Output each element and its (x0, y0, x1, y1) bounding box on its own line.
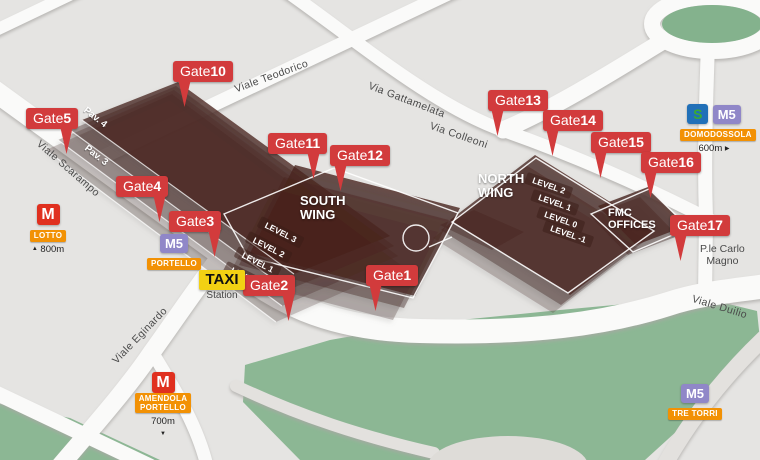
gate-10-pointer-icon (177, 81, 192, 107)
south-wing-line1: SOUTH (300, 193, 346, 208)
domodossola-name-badge: DOMODOSSOLA (680, 129, 756, 141)
metro-m-icon: M (37, 204, 60, 225)
m5-icon: M5 (681, 384, 709, 403)
gate-12-number: 12 (367, 147, 383, 163)
suburban-rail-icon: S (687, 104, 708, 124)
portello-name-badge: PORTELLO (147, 258, 201, 270)
taxi-station[interactable]: TAXI Station (196, 270, 248, 301)
lotto-distance: ▲ 800m (18, 244, 78, 255)
metro-m-icon: M (152, 372, 175, 393)
gate-17-pointer-icon (673, 235, 688, 261)
gate-3-number: 3 (206, 213, 214, 229)
gate-10-prefix: Gate (180, 63, 210, 79)
gate-4-prefix: Gate (123, 178, 153, 194)
south-wing-line2: WING (300, 207, 335, 222)
north-wing-label: NORTH WING (478, 172, 524, 200)
gate-11-pointer-icon (306, 153, 321, 179)
fmc-offices-label: FMC OFFICES (608, 207, 656, 231)
gate-marker-1[interactable]: Gate1 (366, 265, 418, 311)
gate-1-prefix: Gate (373, 267, 403, 283)
gate-1-number: 1 (403, 267, 411, 283)
north-wing-line2: WING (478, 185, 513, 200)
gate-marker-5[interactable]: Gate5 (26, 108, 78, 154)
tre-torri-name-badge: TRE TORRI (668, 408, 722, 420)
gate-12-prefix: Gate (337, 147, 367, 163)
gate-13-number: 13 (525, 92, 541, 108)
south-wing-label: SOUTH WING (300, 194, 346, 222)
station-domodossola[interactable]: S M5 DOMODOSSOLA 600m ▶ (680, 104, 748, 154)
gate-17-number: 17 (707, 217, 723, 233)
station-portello-m5[interactable]: M5 PORTELLO (146, 234, 202, 271)
gate-12-pointer-icon (333, 165, 348, 191)
gate-11-prefix: Gate (275, 135, 305, 151)
gate-17-prefix: Gate (677, 217, 707, 233)
gate-5-number: 5 (63, 110, 71, 126)
gate-marker-11[interactable]: Gate11 (268, 133, 327, 179)
gate-3-pointer-icon (207, 231, 222, 257)
gate-15-prefix: Gate (598, 134, 628, 150)
gate-marker-17[interactable]: Gate17 (670, 215, 730, 261)
map-canvas: Viale Teodorico Via Gattamelata Via Coll… (0, 0, 760, 460)
gate-14-number: 14 (580, 112, 596, 128)
gate-14-pointer-icon (545, 130, 560, 156)
station-tre-torri[interactable]: M5 TRE TORRI (668, 384, 722, 421)
m5-icon: M5 (713, 105, 741, 124)
gate-15-number: 15 (628, 134, 644, 150)
station-lotto[interactable]: M LOTTO ▲ 800m (18, 204, 78, 255)
amendola-distance: 700m▼ (134, 416, 192, 438)
gate-marker-2[interactable]: Gate2 (243, 275, 296, 321)
gate-14-prefix: Gate (550, 112, 580, 128)
lotto-name-badge: LOTTO (30, 230, 66, 242)
gate-16-pointer-icon (643, 172, 658, 198)
gate-marker-4[interactable]: Gate4 (116, 176, 168, 222)
gate-5-pointer-icon (59, 128, 74, 154)
gate-3-prefix: Gate (176, 213, 206, 229)
taxi-sign: TAXI (199, 270, 244, 290)
north-wing-line1: NORTH (478, 171, 524, 186)
fmc-line1: FMC (608, 207, 632, 219)
amendola-name-badge: AMENDOLAPORTELLO (135, 393, 192, 413)
gate-marker-16[interactable]: Gate16 (641, 152, 701, 198)
gate-marker-10[interactable]: Gate10 (173, 61, 233, 107)
gate-2-prefix: Gate (250, 277, 280, 293)
gate-4-pointer-icon (152, 196, 167, 222)
gate-13-prefix: Gate (495, 92, 525, 108)
gate-1-pointer-icon (368, 285, 383, 311)
gate-16-number: 16 (678, 154, 694, 170)
station-amendola[interactable]: M AMENDOLAPORTELLO 700m▼ (134, 372, 192, 438)
gate-4-number: 4 (153, 178, 161, 194)
gate-10-number: 10 (210, 63, 226, 79)
gate-11-number: 11 (305, 135, 320, 151)
gate-15-pointer-icon (593, 152, 608, 178)
gate-16-prefix: Gate (648, 154, 678, 170)
gate-marker-12[interactable]: Gate12 (330, 145, 390, 191)
gate-2-number: 2 (280, 277, 288, 293)
fmc-line2: OFFICES (608, 219, 656, 231)
domodossola-distance: 600m ▶ (680, 143, 748, 154)
gate-2-pointer-icon (281, 295, 296, 321)
taxi-sublabel: Station (196, 290, 248, 301)
m5-icon: M5 (160, 234, 188, 253)
gate-marker-13[interactable]: Gate13 (488, 90, 548, 136)
gate-5-prefix: Gate (33, 110, 63, 126)
roundabout-green (662, 5, 760, 43)
gate-13-pointer-icon (490, 110, 505, 136)
